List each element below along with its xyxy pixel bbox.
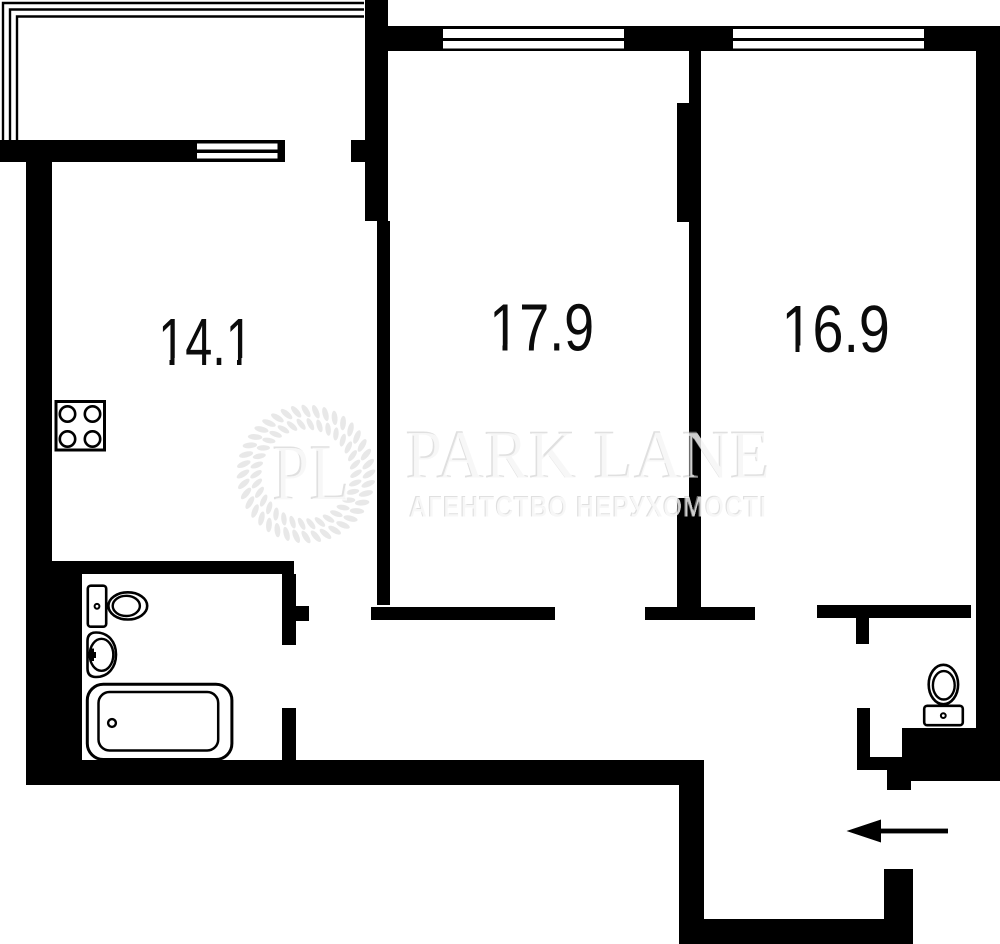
svg-text:16.9: 16.9 <box>782 291 890 366</box>
svg-text:PARK LANE: PARK LANE <box>407 417 772 495</box>
svg-text:PL: PL <box>273 430 351 519</box>
svg-text:АГЕНТСТВО НЕРУХОМОСТІ: АГЕНТСТВО НЕРУХОМОСТІ <box>410 491 768 524</box>
svg-text:17.9: 17.9 <box>489 290 594 365</box>
svg-text:14.1: 14.1 <box>158 306 252 380</box>
